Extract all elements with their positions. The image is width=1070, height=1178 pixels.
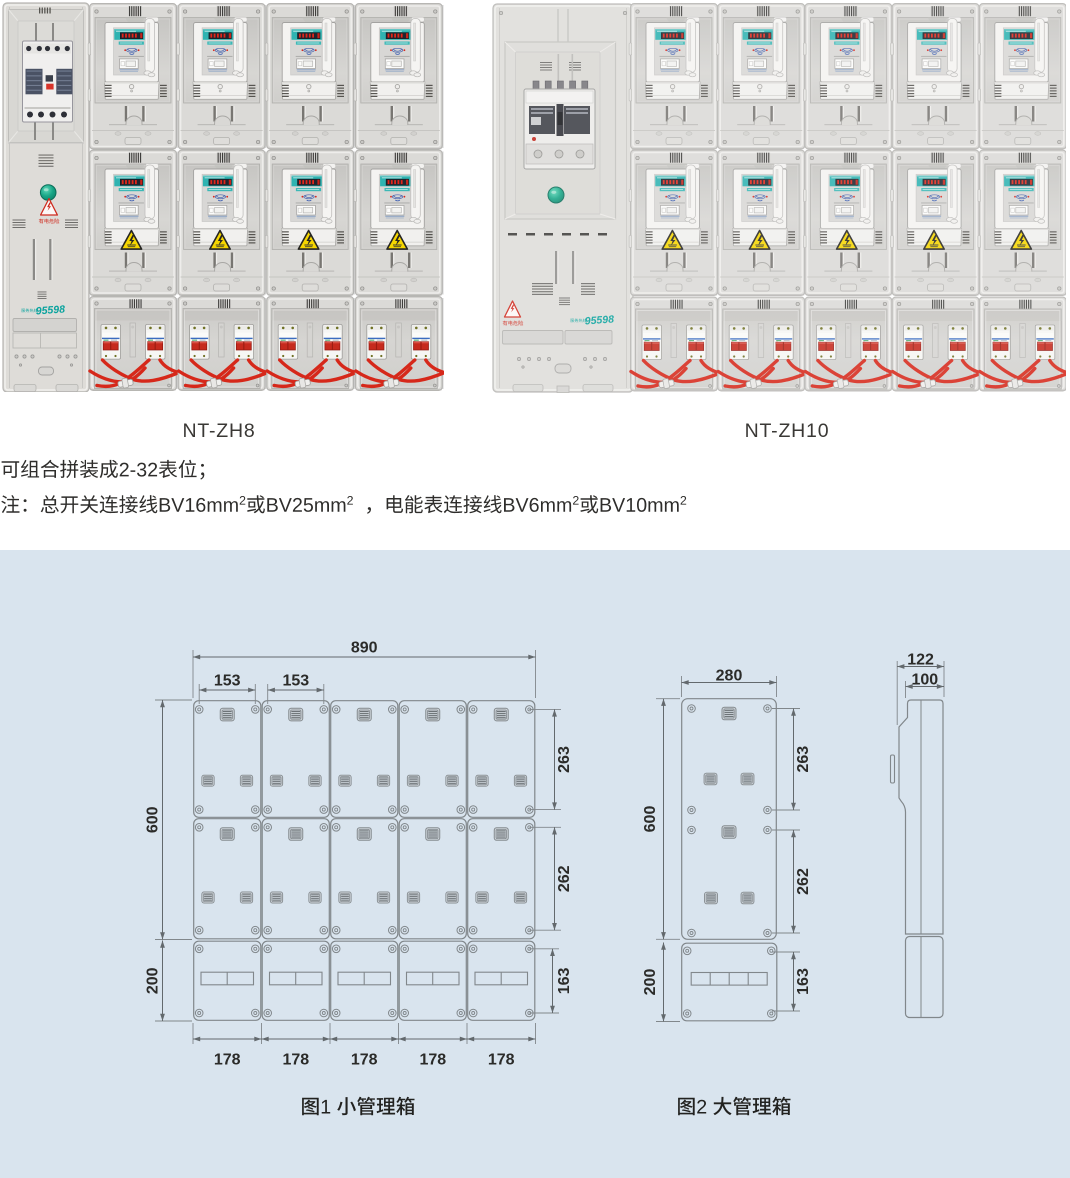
svg-text:153: 153 bbox=[282, 673, 309, 690]
svg-text:178: 178 bbox=[488, 1052, 515, 1069]
svg-text:280: 280 bbox=[716, 668, 743, 685]
svg-text:100: 100 bbox=[911, 672, 938, 689]
svg-text:163: 163 bbox=[556, 967, 573, 994]
svg-text:163: 163 bbox=[795, 968, 812, 995]
svg-text:NT-ZH10: NT-ZH10 bbox=[745, 420, 830, 442]
svg-text:178: 178 bbox=[351, 1052, 378, 1069]
svg-text:263: 263 bbox=[556, 746, 573, 773]
svg-text:600: 600 bbox=[642, 806, 659, 833]
svg-text:178: 178 bbox=[419, 1052, 446, 1069]
svg-text:NT-ZH8: NT-ZH8 bbox=[182, 420, 255, 442]
svg-text:178: 178 bbox=[214, 1052, 241, 1069]
svg-text:95598: 95598 bbox=[35, 303, 65, 317]
svg-text:200: 200 bbox=[145, 967, 162, 994]
svg-text:262: 262 bbox=[795, 868, 812, 895]
svg-text:200: 200 bbox=[642, 969, 659, 996]
svg-text:262: 262 bbox=[556, 865, 573, 892]
svg-text:153: 153 bbox=[214, 673, 241, 690]
svg-text:890: 890 bbox=[351, 640, 378, 657]
svg-text:178: 178 bbox=[282, 1052, 309, 1069]
svg-text:122: 122 bbox=[907, 652, 934, 669]
svg-text:600: 600 bbox=[145, 806, 162, 833]
svg-text:263: 263 bbox=[795, 746, 812, 773]
